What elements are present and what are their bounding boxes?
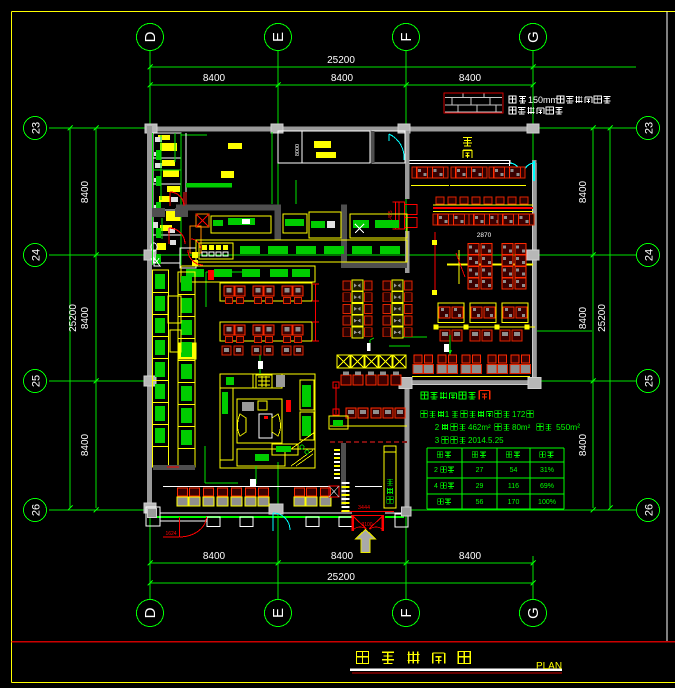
svg-text:8400: 8400 [578, 306, 589, 329]
svg-text:G: G [525, 607, 542, 619]
svg-text:4: 4 [434, 483, 438, 490]
svg-text:8400: 8400 [203, 551, 226, 562]
svg-text:1624: 1624 [165, 531, 176, 537]
svg-text:8400: 8400 [80, 306, 91, 329]
svg-text:8400: 8400 [459, 551, 482, 562]
svg-text:29: 29 [476, 483, 484, 490]
svg-text:24: 24 [644, 249, 656, 261]
svg-text:8400: 8400 [578, 180, 589, 203]
svg-text:F: F [398, 32, 415, 41]
svg-text:E: E [270, 32, 287, 42]
svg-text:D: D [142, 31, 159, 42]
svg-text:8400: 8400 [331, 551, 354, 562]
svg-text:54: 54 [510, 467, 518, 474]
svg-text:G: G [525, 31, 542, 43]
svg-text:80m²: 80m² [512, 423, 531, 432]
svg-text:1495: 1495 [388, 210, 394, 221]
svg-text:PLAN: PLAN [536, 661, 562, 672]
svg-text:8400: 8400 [459, 73, 482, 84]
svg-text:D: D [142, 607, 159, 618]
svg-text:8400: 8400 [203, 73, 226, 84]
svg-text:25: 25 [644, 375, 656, 387]
svg-text:26: 26 [31, 504, 43, 516]
svg-text:100%: 100% [538, 499, 556, 506]
svg-text:116: 116 [508, 483, 519, 490]
svg-text:69%: 69% [540, 483, 554, 490]
svg-text:25200: 25200 [327, 55, 355, 66]
svg-text:8400: 8400 [80, 433, 91, 456]
svg-text:550m²: 550m² [556, 422, 580, 432]
svg-text:23: 23 [644, 122, 656, 134]
svg-text:170: 170 [508, 499, 520, 506]
svg-text:2: 2 [435, 423, 440, 432]
svg-text:3444: 3444 [358, 505, 370, 511]
svg-text:31%: 31% [540, 467, 554, 474]
svg-text:1: 1 [445, 410, 450, 419]
svg-text:150mm: 150mm [528, 95, 558, 105]
svg-text:25200: 25200 [327, 572, 355, 583]
svg-text:2014.5.25: 2014.5.25 [468, 436, 504, 445]
svg-text:172: 172 [512, 410, 526, 419]
svg-text:462m²: 462m² [468, 423, 491, 432]
svg-text:8400: 8400 [331, 73, 354, 84]
svg-text:E: E [270, 608, 287, 618]
svg-text:8400: 8400 [578, 433, 589, 456]
svg-text:56: 56 [476, 499, 484, 506]
svg-text:26: 26 [644, 504, 656, 516]
svg-text:8400: 8400 [80, 180, 91, 203]
svg-text:3: 3 [435, 436, 440, 445]
svg-text:24: 24 [31, 249, 43, 261]
svg-text:8000: 8000 [295, 144, 301, 156]
svg-text:2870: 2870 [477, 232, 492, 239]
svg-text:3100: 3100 [361, 522, 372, 528]
svg-text:25200: 25200 [597, 304, 608, 332]
svg-text:27: 27 [476, 467, 484, 474]
svg-text:25: 25 [31, 375, 43, 387]
svg-text:23: 23 [31, 122, 43, 134]
svg-text:25200: 25200 [68, 304, 79, 332]
svg-text:F: F [398, 608, 415, 617]
svg-text:2: 2 [434, 467, 438, 474]
